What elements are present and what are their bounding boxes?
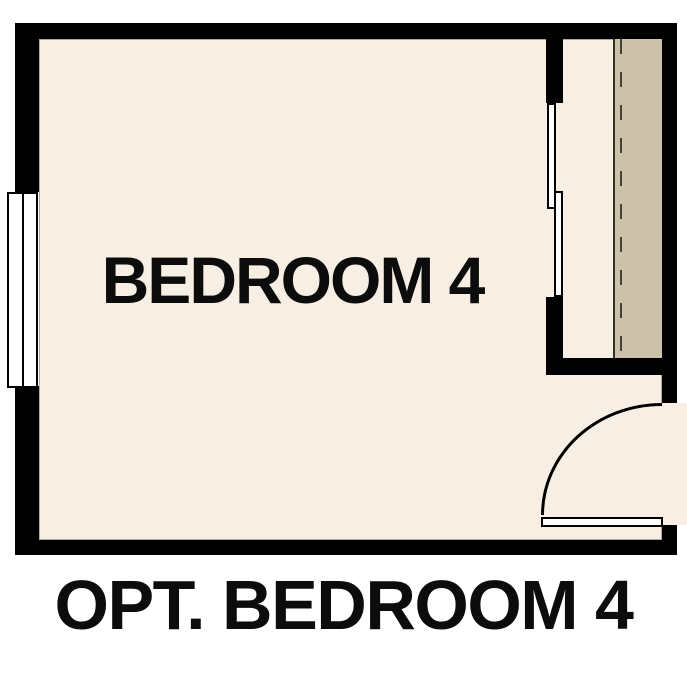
closet-partition-wall-top <box>546 39 563 103</box>
wall-bottom <box>15 540 677 555</box>
wall-right-upper <box>662 23 677 403</box>
closet-rod-dashed-line <box>620 39 622 358</box>
door-opening-floor <box>661 403 687 525</box>
wall-left-upper <box>15 23 39 192</box>
wall-top <box>15 23 677 39</box>
floor-plan: BEDROOM 4 OPT. BEDROOM 4 <box>0 0 687 687</box>
closet-bottom-wall <box>546 358 677 375</box>
closet-sliding-door-back <box>554 191 563 297</box>
window-pane-right <box>22 192 38 388</box>
door-leaf <box>541 517 663 527</box>
room-label: BEDROOM 4 <box>39 247 546 313</box>
wall-right-lower <box>662 525 677 555</box>
wall-left-lower <box>15 386 39 555</box>
plan-caption: OPT. BEDROOM 4 <box>0 570 687 640</box>
